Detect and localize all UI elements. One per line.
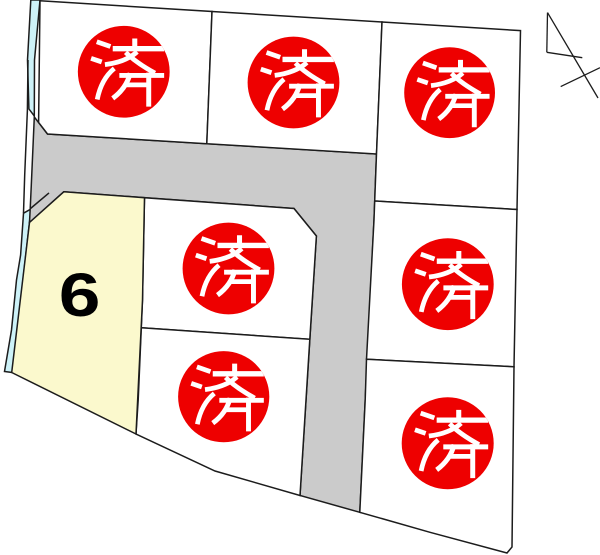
svg-text:6: 6 bbox=[59, 262, 101, 330]
